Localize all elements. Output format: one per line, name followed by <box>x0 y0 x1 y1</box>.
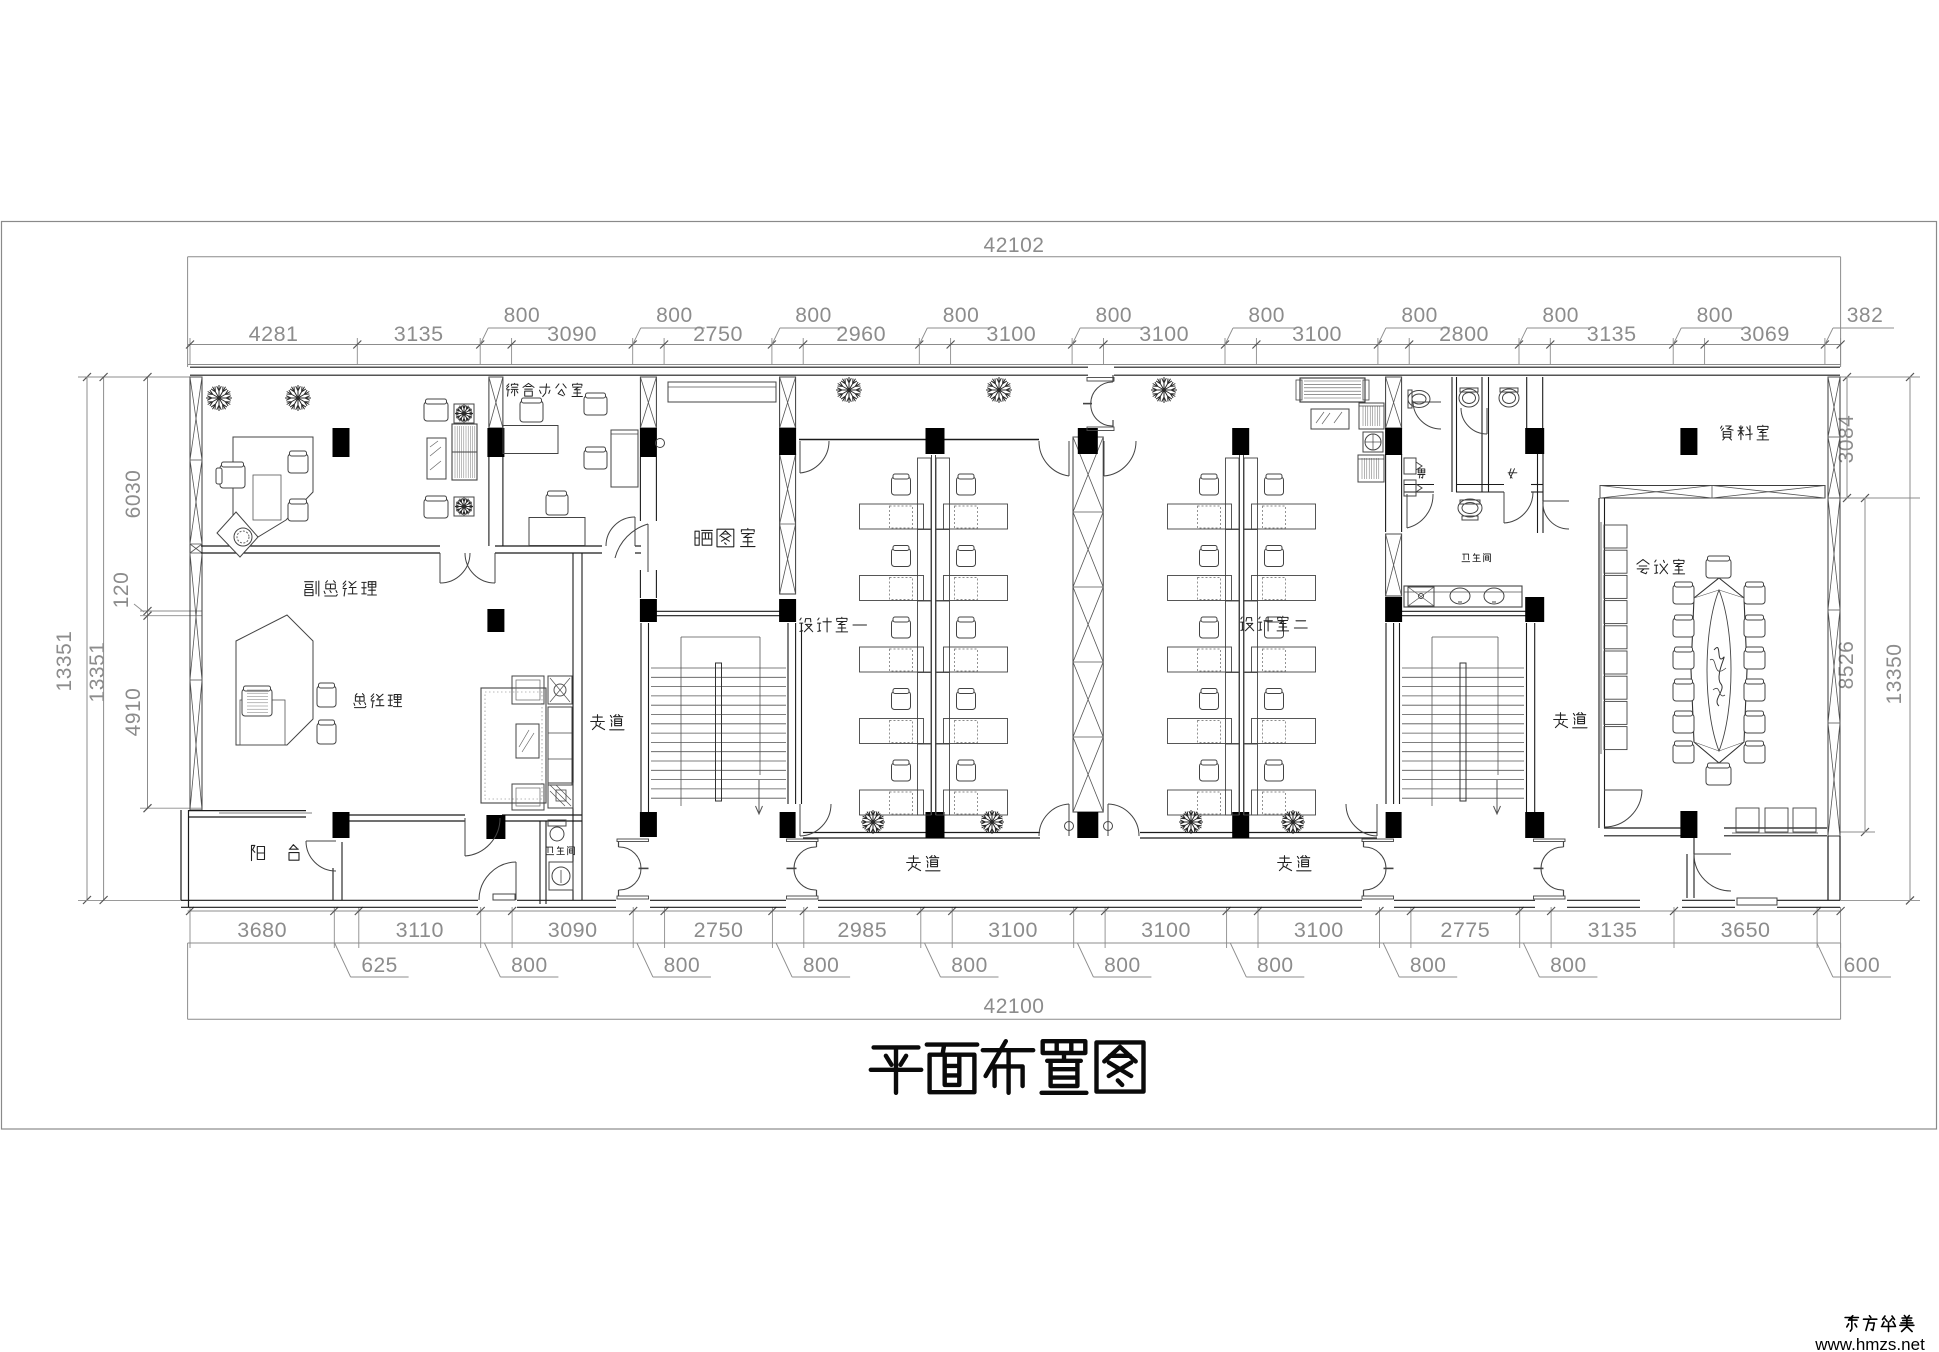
svg-text:2985: 2985 <box>837 918 887 942</box>
svg-text:120: 120 <box>110 572 133 609</box>
svg-text:3110: 3110 <box>396 918 444 942</box>
svg-text:3100: 3100 <box>1292 322 1342 346</box>
svg-text:3100: 3100 <box>1139 322 1189 346</box>
svg-text:3090: 3090 <box>548 918 598 942</box>
svg-text:3100: 3100 <box>986 322 1036 346</box>
svg-text:600: 600 <box>1844 954 1881 977</box>
svg-text:42102: 42102 <box>984 234 1045 257</box>
svg-text:3135: 3135 <box>394 322 444 346</box>
svg-text:800: 800 <box>1096 304 1133 327</box>
svg-text:800: 800 <box>1697 304 1734 327</box>
svg-text:800: 800 <box>1410 954 1447 977</box>
svg-text:3100: 3100 <box>988 918 1038 942</box>
svg-text:800: 800 <box>1542 304 1579 327</box>
svg-text:3100: 3100 <box>1141 918 1191 942</box>
svg-text:3650: 3650 <box>1721 918 1771 942</box>
svg-text:6030: 6030 <box>122 470 145 519</box>
svg-text:13351: 13351 <box>86 642 109 703</box>
svg-text:3084: 3084 <box>1835 415 1858 464</box>
svg-text:3680: 3680 <box>237 918 287 942</box>
svg-text:625: 625 <box>361 954 398 977</box>
svg-text:800: 800 <box>656 304 693 327</box>
svg-text:2750: 2750 <box>694 918 744 942</box>
svg-text:800: 800 <box>504 304 541 327</box>
svg-text:42100: 42100 <box>984 995 1045 1018</box>
svg-text:3135: 3135 <box>1588 918 1638 942</box>
svg-text:800: 800 <box>1550 954 1587 977</box>
svg-text:2750: 2750 <box>693 322 743 346</box>
svg-text:13350: 13350 <box>1883 644 1906 705</box>
svg-text:800: 800 <box>951 954 988 977</box>
svg-text:800: 800 <box>803 954 840 977</box>
svg-text:4281: 4281 <box>249 322 299 346</box>
svg-text:800: 800 <box>1104 954 1141 977</box>
svg-text:3069: 3069 <box>1740 322 1790 346</box>
svg-text:8526: 8526 <box>1835 641 1858 690</box>
svg-text:2775: 2775 <box>1440 918 1490 942</box>
svg-text:800: 800 <box>943 304 980 327</box>
svg-text:800: 800 <box>1257 954 1294 977</box>
svg-text:4910: 4910 <box>122 688 145 737</box>
svg-text:800: 800 <box>1248 304 1285 327</box>
svg-text:3090: 3090 <box>547 322 597 346</box>
svg-text:2800: 2800 <box>1439 322 1489 346</box>
svg-text:3135: 3135 <box>1587 322 1637 346</box>
svg-text:3100: 3100 <box>1294 918 1344 942</box>
svg-text:www.hmzs.net: www.hmzs.net <box>1814 1335 1925 1352</box>
svg-text:800: 800 <box>1401 304 1438 327</box>
svg-text:2960: 2960 <box>836 322 886 346</box>
svg-text:382: 382 <box>1847 304 1884 327</box>
svg-text:800: 800 <box>511 954 548 977</box>
svg-text:13351: 13351 <box>53 631 76 692</box>
svg-text:800: 800 <box>795 304 832 327</box>
svg-text:800: 800 <box>664 954 701 977</box>
